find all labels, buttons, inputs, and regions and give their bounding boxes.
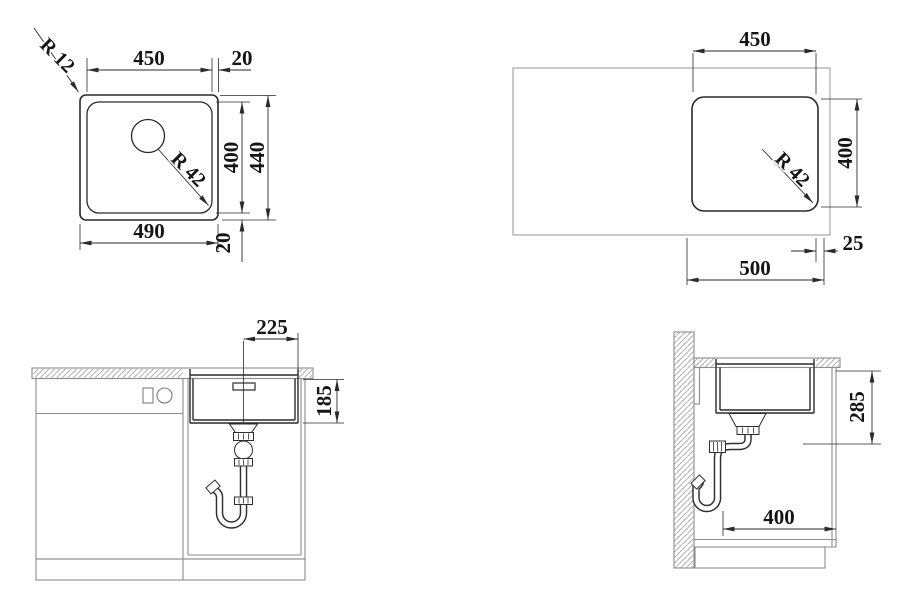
- dim-label-edge-clearance: 25: [843, 231, 864, 255]
- siphon-trap-side: [691, 414, 766, 509]
- control-knob: [157, 388, 172, 403]
- countertop-hatch-left: [33, 369, 183, 378]
- trap-cup: [235, 441, 253, 459]
- dim-label-rear-clearance: 400: [763, 505, 795, 529]
- dim-label-rim-right: 20: [232, 46, 253, 70]
- dim-label-cabinet-span: 500: [739, 256, 771, 280]
- dim-label-outer-width: 490: [133, 219, 165, 243]
- dim-label-inner-width: 450: [133, 46, 165, 70]
- cabinet-plinth: [36, 559, 305, 580]
- wall-rail: [694, 368, 700, 405]
- sink-outer-edge: [80, 95, 218, 220]
- drain-flange: [729, 414, 766, 427]
- cabinet-outline: [36, 379, 305, 560]
- side-elevation-view: 285 400: [674, 332, 881, 568]
- plan-view-countertop: 450 400 R 42 25 500: [513, 27, 864, 285]
- countertop-hatch-left: [695, 359, 715, 368]
- countertop-hatch-right: [816, 359, 839, 368]
- dim-label-cutout-height: 400: [833, 137, 857, 169]
- dim-label-center-to-edge: 225: [256, 315, 288, 339]
- dim-label-cutout-width: 450: [739, 27, 771, 51]
- sink-installation-drawing: 450 20 400 440 490 20 R 12 R 42 450: [0, 0, 915, 604]
- dim-label-bowl-depth: 185: [312, 385, 336, 417]
- cabinet-plinth-side: [695, 547, 825, 568]
- radius-label-outer: R 12: [36, 34, 79, 77]
- dim-label-installation-depth: 285: [845, 391, 869, 423]
- dim-label-outer-height: 440: [245, 142, 269, 174]
- overflow-slot: [233, 383, 255, 390]
- siphon-trap: [206, 424, 258, 525]
- dim-label-rim-bottom: 20: [211, 233, 235, 254]
- sink-bowl-front: [190, 369, 298, 423]
- drain-flange: [230, 424, 258, 433]
- appliance-controls: [143, 388, 172, 403]
- technical-drawing-sheet: 450 20 400 440 490 20 R 12 R 42 450: [0, 0, 915, 604]
- countertop-hatch-right: [299, 369, 312, 378]
- radius-label-bowl: R 42: [167, 148, 210, 191]
- radius-label-cutout: R 42: [771, 148, 814, 191]
- dim-label-inner-height: 400: [219, 142, 243, 174]
- drain-hole: [132, 120, 165, 153]
- sink-bowl-edge: [87, 102, 212, 213]
- front-elevation-view: 225 185: [32, 315, 344, 580]
- plan-view-sink: 450 20 400 440 490 20 R 12 R 42: [34, 28, 276, 262]
- wall-section: [674, 332, 694, 568]
- control-button: [143, 388, 153, 403]
- cutout-outline: [692, 97, 818, 211]
